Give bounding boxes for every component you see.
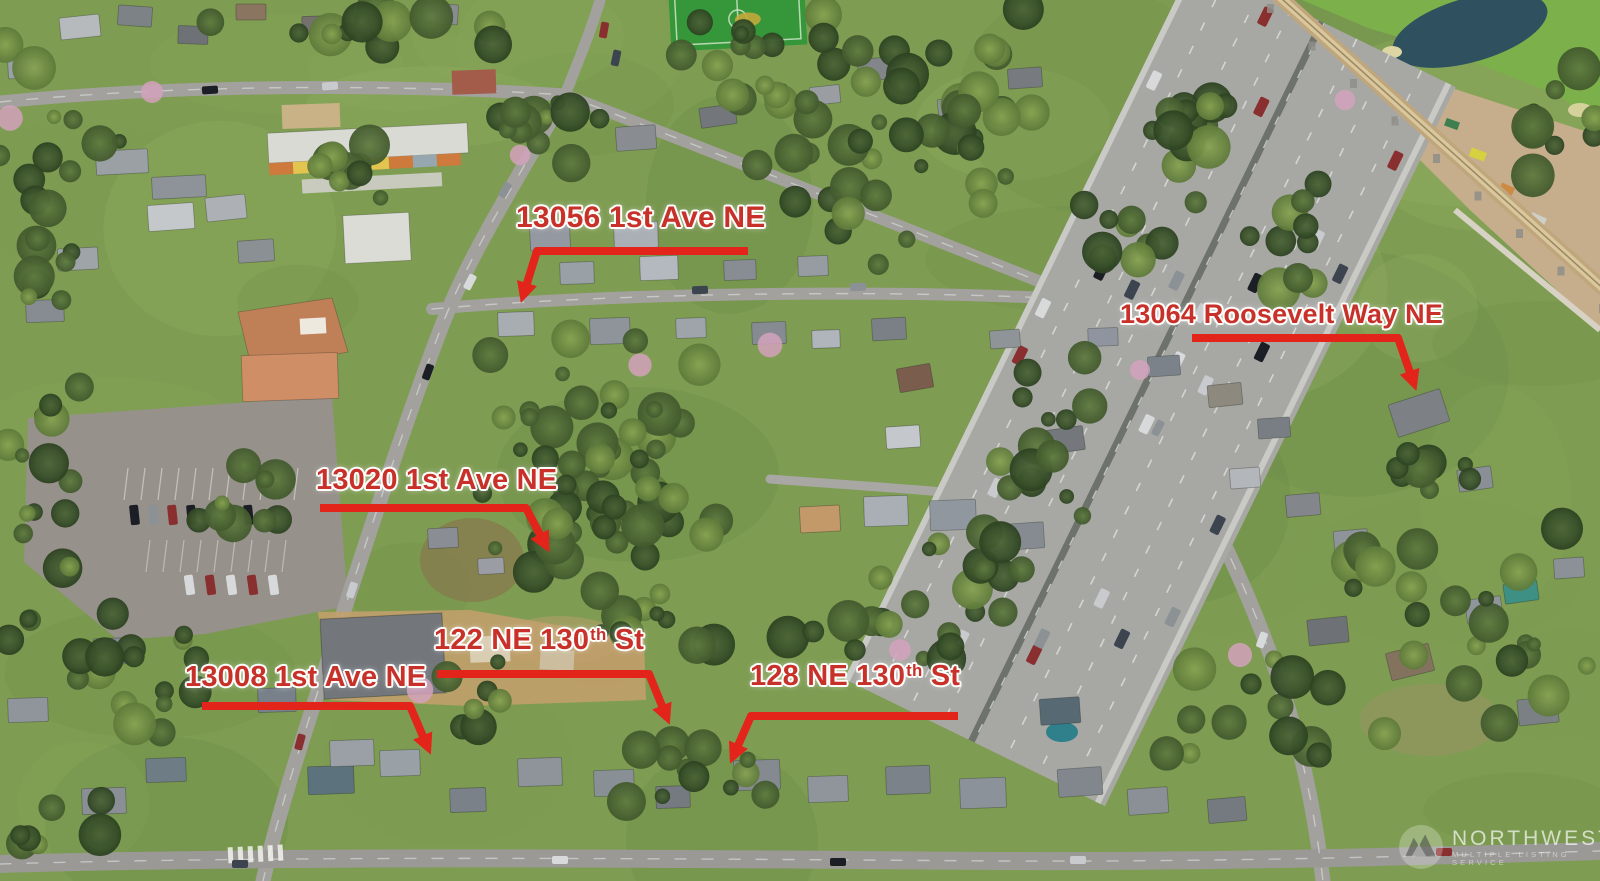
address-superscript: th [906,661,922,680]
address-text: St [606,624,644,656]
brick-building [452,69,497,95]
aerial-photo-listing-image: 13056 1st Ave NE 13064 Roosevelt Way NE … [0,0,1600,881]
address-text: 13056 1st Ave NE [516,201,765,234]
address-text: 13020 1st Ave NE [316,464,557,496]
address-text: 128 NE 130 [750,660,905,692]
address-label-13020-1st-ave-ne: 13020 1st Ave NE [316,466,558,495]
church-building [238,298,348,402]
address-label-13008-1st-ave-ne: 13008 1st Ave NE [185,663,427,692]
nwmls-watermark: NORTHWEST MULTIPLE LISTING SERVICE [1398,824,1600,870]
address-superscript: th [590,625,606,644]
address-text: 122 NE 130 [434,624,589,656]
address-text: 13008 1st Ave NE [185,661,426,693]
watermark-subtitle-text: MULTIPLE LISTING SERVICE [1452,851,1600,866]
address-label-128-ne-130th-st: 128 NE 130th St [750,662,960,691]
watermark-brand-text: NORTHWEST [1452,828,1600,849]
aerial-photograph [0,0,1600,881]
address-text: 13064 Roosevelt Way NE [1120,299,1443,329]
building [282,103,341,129]
address-text: St [922,660,960,692]
address-label-13064-roosevelt-way-ne: 13064 Roosevelt Way NE [1120,301,1444,328]
address-label-122-ne-130th-st: 122 NE 130th St [434,626,644,655]
commercial-building [343,212,411,263]
address-label-13056-1st-ave-ne: 13056 1st Ave NE [516,203,766,233]
nwmls-mountain-logo-icon [1398,824,1444,870]
